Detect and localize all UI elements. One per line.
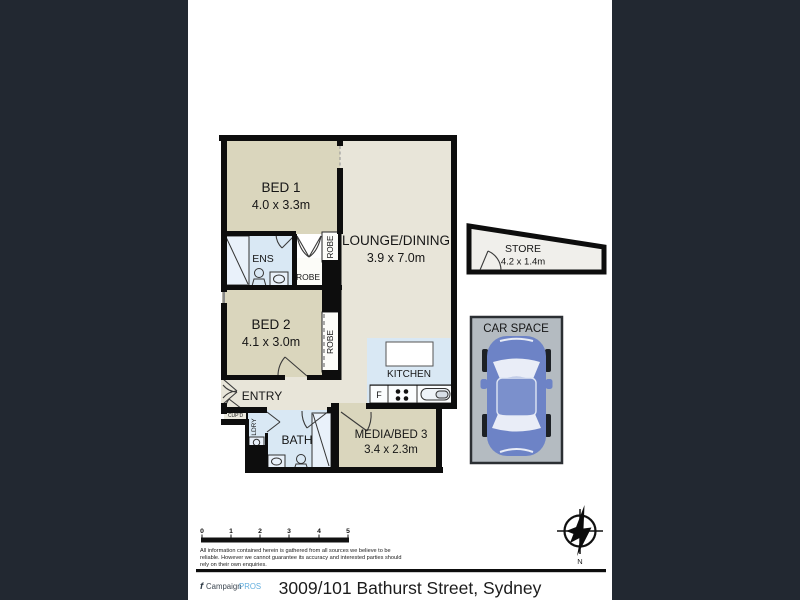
bed2-dims: 4.1 x 3.0m (242, 335, 300, 349)
lounge-dims: 3.9 x 7.0m (367, 251, 425, 265)
north-compass-icon: N (557, 505, 603, 566)
wall-bottom (245, 467, 443, 473)
bed1-label: BED 1 (261, 180, 300, 195)
wall-kitchen-bottom (366, 403, 457, 409)
scale-tick-2: 2 (258, 528, 262, 535)
media-dims: 3.4 x 2.3m (364, 444, 418, 456)
media-label: MEDIA/BED 3 (355, 429, 428, 441)
logo-f-icon: f (200, 581, 204, 592)
kitchen-label: KITCHEN (387, 369, 431, 380)
brand-logo: f Campaign PROS (200, 581, 261, 592)
scale-bar: 0 1 2 3 4 5 (200, 528, 350, 543)
carspace-diagram (471, 317, 562, 463)
wall-left-mid (221, 303, 227, 379)
scale-tick-0: 0 (200, 528, 204, 535)
fridge-label: F (376, 390, 382, 400)
robe-top-label: ROBE (326, 236, 335, 259)
bath-basin-icon (268, 455, 285, 468)
wall-bath-media-divider (331, 403, 339, 473)
robe-bed2-label: ROBE (325, 330, 335, 354)
floorplan-canvas: BED 1 4.0 x 3.3m LOUNGE/DINING 3.9 x 7.0… (0, 0, 800, 600)
kitchen-island (386, 342, 433, 366)
wall-block-robe-upper (322, 260, 340, 312)
lounge-label: LOUNGE/DINING (342, 233, 450, 248)
ens-basin-icon (270, 272, 288, 286)
scale-tick-3: 3 (287, 528, 291, 535)
wall-robe-lounge-side (338, 232, 342, 380)
bath-label: BATH (281, 433, 312, 447)
scale-bar-rule (201, 538, 349, 543)
disclaimer-text: All information contained herein is gath… (200, 548, 402, 568)
wall-bed1-stub (337, 135, 343, 146)
wall-lounge-right (451, 135, 457, 409)
scale-tick-1: 1 (229, 528, 233, 535)
bed2-label: BED 2 (251, 317, 290, 332)
counter-edge-line (370, 385, 452, 386)
kitchen-counter (370, 385, 452, 403)
ldry-label: LDRY (251, 418, 258, 436)
robe-bifold-doors (297, 236, 321, 257)
window-left (223, 292, 226, 303)
left-dark-panel (0, 0, 188, 600)
sink-icon (421, 389, 450, 401)
wall-ldry-left (245, 419, 249, 447)
disclaimer-line1: All information contained herein is gath… (200, 548, 391, 554)
page-title: 3009/101 Bathurst Street, Sydney (279, 578, 542, 598)
robe-mid-label: ROBE (296, 272, 320, 282)
wall-bed1-partition (337, 168, 343, 234)
wall-ldry-bath-divider (265, 433, 268, 471)
floorplan-page: BED 1 4.0 x 3.3m LOUNGE/DINING 3.9 x 7.0… (0, 0, 800, 600)
cupd-label: CUP'D (228, 413, 244, 419)
store-label: STORE (505, 243, 541, 255)
disclaimer-line2: reliable. However we cannot guarantee it… (200, 555, 402, 561)
disclaimer-line3: rely on their own enquiries. (200, 562, 267, 568)
wall-ens-top (221, 231, 296, 236)
wall-bed2-entry-right (307, 375, 341, 380)
bed1-dims: 4.0 x 3.3m (252, 198, 310, 212)
wall-media-right (436, 403, 442, 473)
compass-north-label: N (577, 557, 582, 566)
entry-label: ENTRY (242, 389, 282, 403)
footer-divider (196, 569, 606, 572)
wall-left-upper (221, 135, 227, 292)
car-icon (481, 336, 553, 456)
carspace-label: CAR SPACE (483, 323, 549, 335)
wall-cupd-bottom (221, 419, 249, 425)
scale-tick-4: 4 (317, 528, 321, 535)
right-dark-panel (612, 0, 800, 600)
logo-pros-text: PROS (239, 582, 261, 591)
store-dims: 4.2 x 1.4m (501, 257, 545, 268)
logo-campaign-text: Campaign (206, 582, 242, 591)
ens-label: ENS (252, 253, 274, 265)
scale-tick-5: 5 (346, 528, 350, 535)
wall-cupd-right (246, 408, 248, 420)
wall-bed2-entry-left (221, 375, 285, 380)
